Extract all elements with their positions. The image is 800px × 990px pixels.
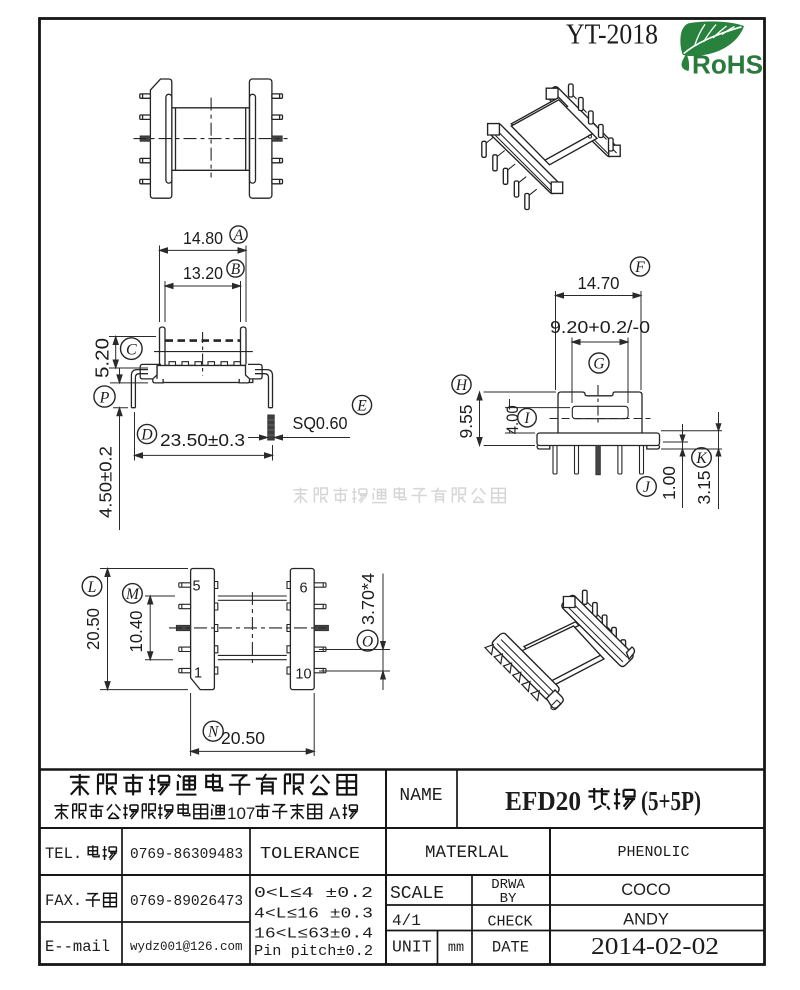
svg-text:D: D xyxy=(140,427,152,444)
svg-text:I: I xyxy=(523,410,530,427)
svg-text:5.20: 5.20 xyxy=(91,338,112,378)
svg-text:23.50±0.3: 23.50±0.3 xyxy=(160,430,245,450)
svg-text:SCALE: SCALE xyxy=(390,884,444,904)
svg-text:3.15: 3.15 xyxy=(694,471,714,505)
svg-text:F: F xyxy=(634,259,645,276)
svg-text:TOLERANCE: TOLERANCE xyxy=(260,845,360,864)
svg-text:9.55: 9.55 xyxy=(456,405,476,439)
svg-text:BY: BY xyxy=(500,891,517,907)
svg-text:0769-86309483: 0769-86309483 xyxy=(130,847,243,863)
svg-text:1: 1 xyxy=(194,666,202,682)
svg-text:10.40: 10.40 xyxy=(126,610,146,652)
svg-text:A: A xyxy=(329,804,341,823)
svg-text:A: A xyxy=(233,227,244,244)
svg-text:9.20+0.2/-0: 9.20+0.2/-0 xyxy=(550,317,650,337)
svg-text:B: B xyxy=(231,261,241,278)
svg-text:EFD20: EFD20 xyxy=(505,786,581,816)
svg-text:FAX.: FAX. xyxy=(45,892,82,910)
svg-text:K: K xyxy=(695,450,707,467)
svg-text:4<L≤16 ±0.3: 4<L≤16 ±0.3 xyxy=(254,906,373,923)
svg-text:J: J xyxy=(643,479,651,496)
svg-text:0769-89026473: 0769-89026473 xyxy=(130,894,243,910)
svg-text:10: 10 xyxy=(295,667,311,683)
svg-text:DATE: DATE xyxy=(492,939,529,957)
svg-text:1.00: 1.00 xyxy=(659,466,679,500)
svg-text:4.50±0.2: 4.50±0.2 xyxy=(96,446,116,518)
svg-text:YT-2018: YT-2018 xyxy=(566,19,658,51)
svg-text:2014-02-02: 2014-02-02 xyxy=(591,934,719,960)
svg-text:3.70*4: 3.70*4 xyxy=(358,573,378,625)
svg-text:L: L xyxy=(87,579,97,596)
svg-text:(5+5P): (5+5P) xyxy=(641,786,701,816)
svg-text:H: H xyxy=(455,377,468,394)
svg-text:6: 6 xyxy=(299,581,307,597)
svg-text:0<L≤4 ±0.2: 0<L≤4 ±0.2 xyxy=(254,885,373,902)
svg-text:5: 5 xyxy=(192,579,200,595)
svg-text:SQ0.60: SQ0.60 xyxy=(293,413,348,433)
svg-text:107: 107 xyxy=(227,804,255,823)
svg-text:COCO: COCO xyxy=(621,881,671,899)
svg-text:mm: mm xyxy=(448,941,464,956)
svg-text:MATERLAL: MATERLAL xyxy=(425,843,509,863)
svg-text:TEL.: TEL. xyxy=(45,845,82,863)
svg-text:Pin pitch±0.2: Pin pitch±0.2 xyxy=(254,943,373,960)
svg-text:PHENOLIC: PHENOLIC xyxy=(617,844,689,861)
svg-text:UNIT: UNIT xyxy=(392,938,432,957)
svg-text:NAME: NAME xyxy=(399,786,442,806)
svg-text:E--mail: E--mail xyxy=(45,938,110,956)
svg-text:13.20: 13.20 xyxy=(183,263,223,283)
svg-text:CHECK: CHECK xyxy=(487,914,532,931)
svg-text:20.50: 20.50 xyxy=(83,608,103,650)
svg-text:14.70: 14.70 xyxy=(578,273,620,293)
svg-text:16<L≤63±0.4: 16<L≤63±0.4 xyxy=(254,926,373,943)
svg-text:E: E xyxy=(356,398,367,415)
svg-text:14.80: 14.80 xyxy=(183,228,223,248)
svg-text:RoHS: RoHS xyxy=(692,52,763,80)
svg-text:O: O xyxy=(362,633,373,650)
svg-text:N: N xyxy=(207,724,220,741)
svg-text:ANDY: ANDY xyxy=(623,911,669,929)
svg-text:4.00: 4.00 xyxy=(504,405,522,434)
svg-text:20.50: 20.50 xyxy=(221,728,265,748)
svg-text:P: P xyxy=(99,389,110,406)
svg-text:M: M xyxy=(125,586,140,603)
svg-text:4/1: 4/1 xyxy=(392,912,421,930)
svg-text:wydz001@126.com: wydz001@126.com xyxy=(130,940,243,954)
svg-text:G: G xyxy=(593,356,604,373)
svg-text:C: C xyxy=(126,341,137,358)
